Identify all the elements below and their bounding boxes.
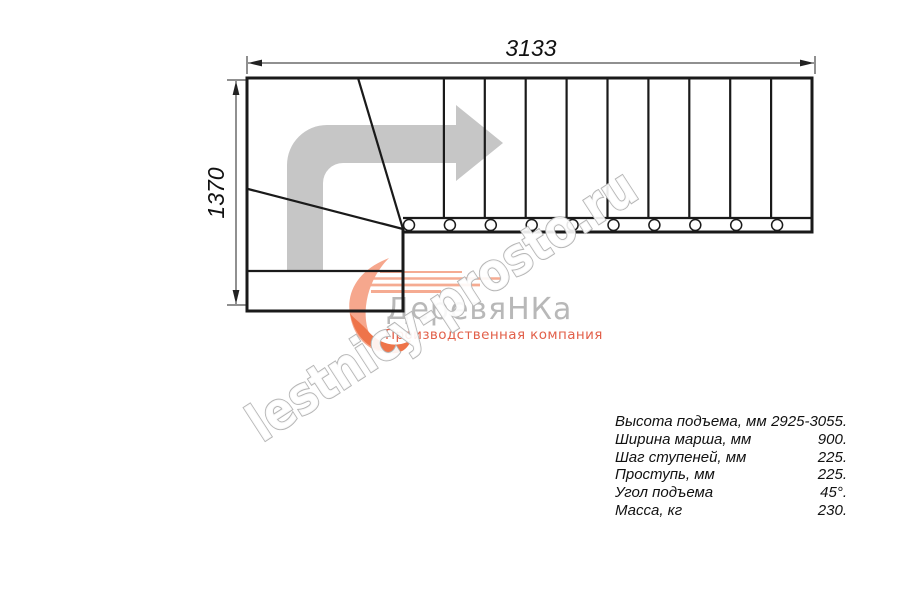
spec-value: 230.: [818, 502, 847, 520]
spec-label: Проступь, мм: [615, 466, 715, 484]
spec-value: 225.: [818, 449, 847, 467]
spec-row: Ширина марша, мм 900.: [615, 431, 847, 449]
winder-tread-lines: [247, 78, 403, 271]
spec-row: Проступь, мм 225.: [615, 466, 847, 484]
dimension-height-label: 1370: [203, 167, 229, 218]
spec-table: Высота подъема, мм 2925-3055. Ширина мар…: [615, 413, 847, 520]
spec-row: Масса, кг 230.: [615, 502, 847, 520]
page: ДеревяНКа Производственная компания: [0, 0, 900, 600]
spec-row: Шаг ступеней, мм 225.: [615, 449, 847, 467]
dimension-height: [227, 80, 246, 305]
spec-label: Угол подъема: [615, 484, 713, 502]
spec-value: 2925-3055.: [771, 413, 847, 431]
balusters: [404, 220, 783, 231]
spec-value: 900.: [818, 431, 847, 449]
spec-label: Масса, кг: [615, 502, 682, 520]
stair-outline: [246, 77, 814, 313]
dimension-width-label: 3133: [505, 35, 556, 61]
spec-value: 45°.: [820, 484, 847, 502]
spec-value: 225.: [818, 466, 847, 484]
spec-label: Ширина марша, мм: [615, 431, 751, 449]
spec-row: Угол подъема 45°.: [615, 484, 847, 502]
spec-row: Высота подъема, мм 2925-3055.: [615, 413, 847, 431]
direction-arrow: [287, 105, 503, 270]
spec-label: Шаг ступеней, мм: [615, 449, 746, 467]
spec-label: Высота подъема, мм: [615, 413, 767, 431]
